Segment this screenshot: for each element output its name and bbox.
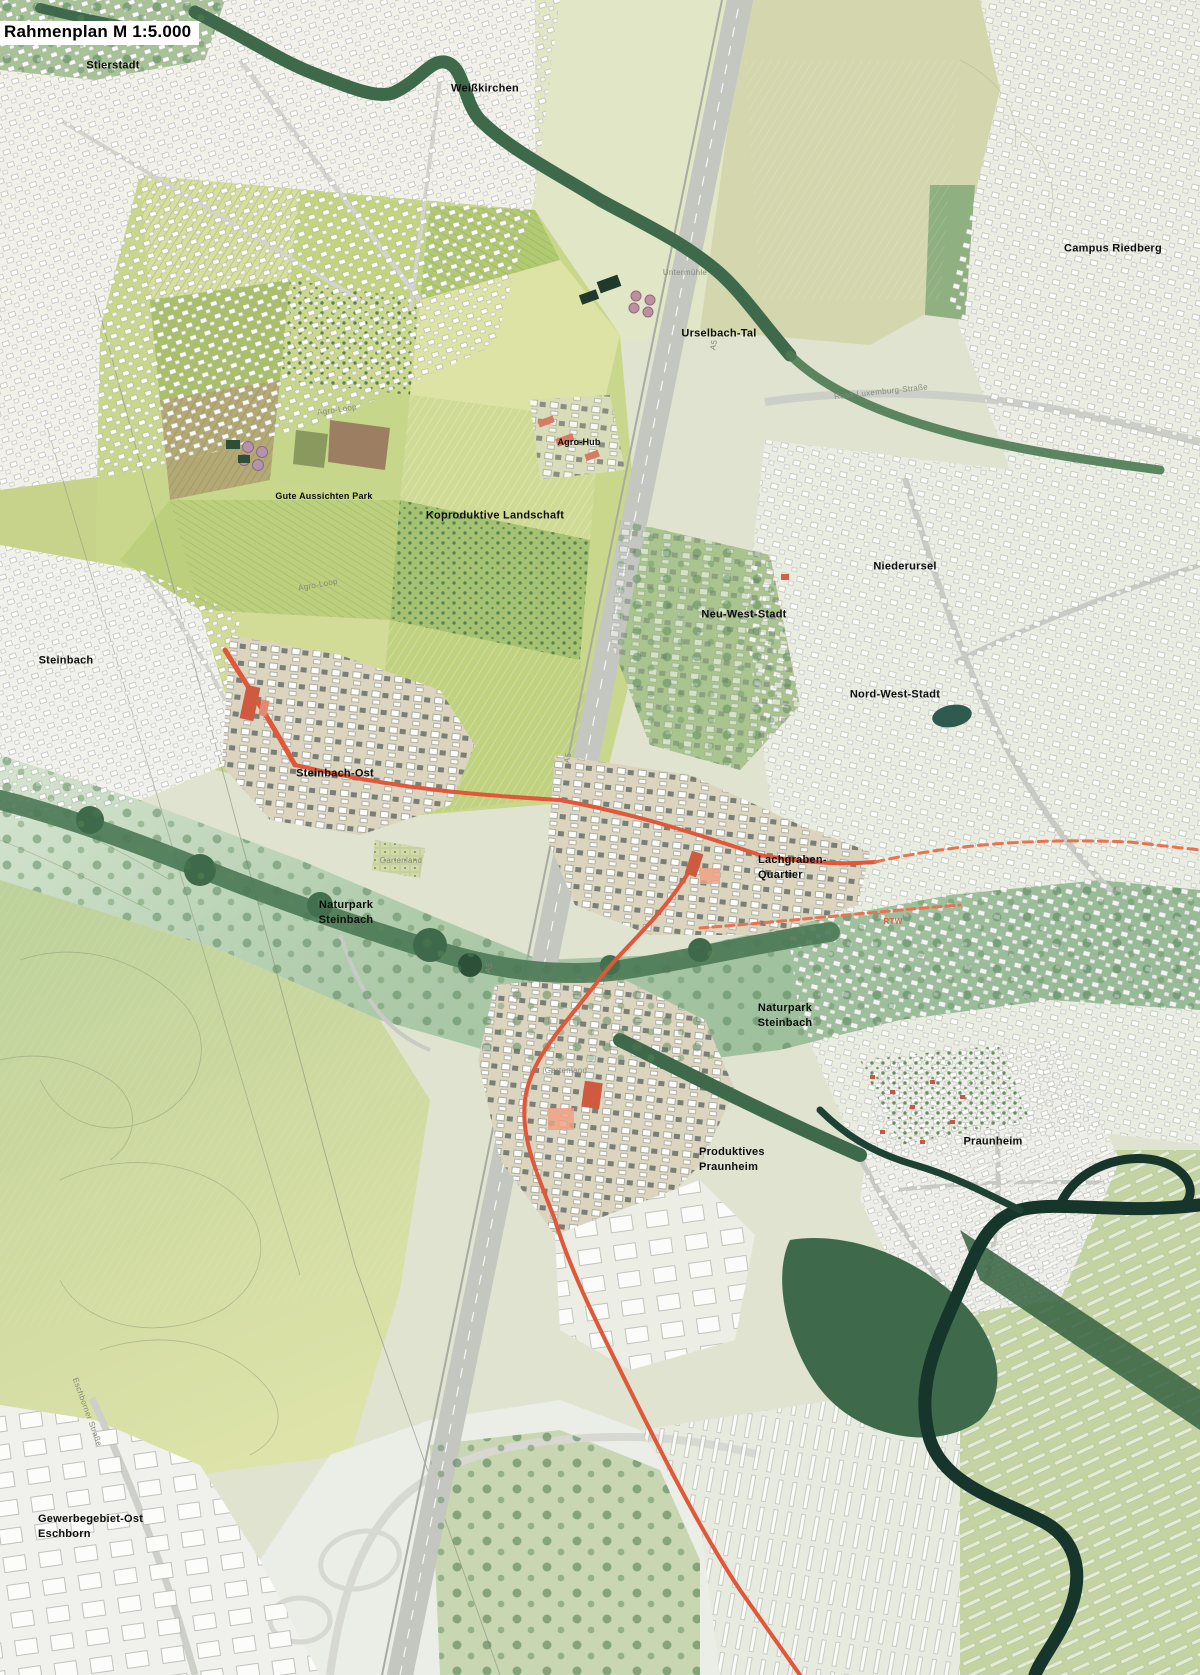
- plaza-salmon: [700, 868, 720, 884]
- plan-title-text: Rahmenplan M 1:5.000: [4, 22, 191, 41]
- red-building: [781, 574, 789, 580]
- field-patch-redbrown: [328, 420, 390, 470]
- field-stripes: [745, 60, 960, 300]
- agro-hub-buildings: [530, 395, 625, 480]
- red-building: [581, 1081, 602, 1109]
- plaza-salmon: [548, 1108, 574, 1130]
- map-canvas: [0, 0, 1200, 1675]
- rahmenplan-map: Rahmenplan M 1:5.000 StierstadtWeißkirch…: [0, 0, 1200, 1675]
- field-patch: [293, 430, 328, 468]
- plan-title: Rahmenplan M 1:5.000: [0, 21, 199, 45]
